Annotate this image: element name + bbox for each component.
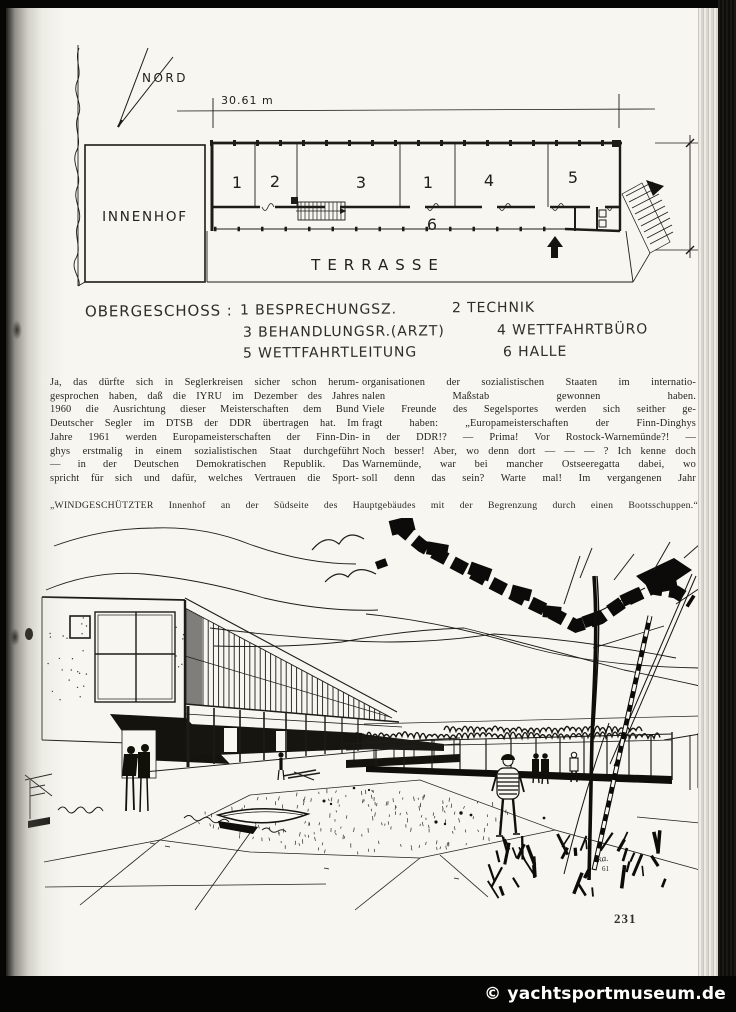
room-4: 4 [484,171,494,190]
paper-sheet: NORD 30.61 m [6,8,698,976]
wall-stipple [47,617,184,700]
image-caption: „WINDGESCHÜTZTER Innenhof an der Südseit… [50,500,698,511]
legend-title: OBERGESCHOSS : [85,301,233,320]
article-column-left: Ja, das dürfte sich in Seglerkreisen sic… [50,376,359,486]
terrasse-label: TERRASSE [310,256,445,274]
stairs [291,197,346,220]
legend-item-1: 1 BESPRECHUNGSZ. [240,301,397,318]
legend-item-5: 5 WETTFAHRTLEITUNG [243,344,417,361]
legend-item-4: 4 WETTFAHRTBÜRO [497,321,648,338]
artist-signature: ka. [597,853,609,864]
north-label: NORD [142,71,188,85]
building-plan: TERRASSE 1 2 3 1 4 5 6 [207,140,633,282]
bush-scribbles [354,726,660,739]
watermark-bar: © yachtsportmuseum.de [0,976,736,1012]
side-stair [25,774,52,828]
innenhof-label: INNENHOF [102,209,188,225]
perspective-sketch: ka. 61 [24,518,700,912]
article-column-right: organisationen der sozialistischen Staat… [362,376,696,486]
legend-item-3: 3 BEHANDLUNGSR.(ARZT) [243,323,445,340]
north-arrow: NORD [118,48,188,127]
page-number: 231 [614,911,637,927]
ramp [622,180,673,282]
room-3: 3 [356,173,366,192]
legend-item-6: 6 HALLE [503,344,567,360]
edge-mark [25,628,33,640]
entrance-arrow [547,236,563,258]
grass-edges [58,770,320,832]
birds-icon [312,535,376,582]
scanned-book-page: NORD 30.61 m [0,0,736,1012]
binding-mark-top [12,320,22,340]
room-1b: 1 [423,173,433,192]
gable-window [95,612,175,702]
artist-signature-year: 61 [602,865,610,873]
clubhouse-building [42,597,444,778]
flag-arrow [646,180,664,196]
small-window [70,616,90,638]
watermark-text: © yachtsportmuseum.de [484,984,726,1004]
width-dim-label: 30.61 m [221,94,274,107]
scan-right-border [718,0,736,1012]
pine-branch-silhouette [375,518,700,628]
dinghy-boat [218,809,308,834]
innenhof-court: INNENHOF [85,145,205,282]
striped-shirt-person [492,754,524,836]
legend-item-2: 2 TECHNIK [452,300,535,317]
room-6-hall: 6 [427,215,437,234]
room-numbers: 1 2 3 1 4 5 6 [232,168,578,234]
binding-mark-bottom [10,628,20,646]
floor-plan-drawing: NORD 30.61 m [70,30,710,298]
width-dimension: 30.61 m [177,94,655,128]
grass-tufts [488,830,666,898]
room-5: 5 [568,168,578,187]
distant-pier-line [364,716,700,724]
page-stack-edge [698,8,718,976]
room-2: 2 [270,172,280,191]
room-1a: 1 [232,173,242,192]
wc-rooms [575,207,606,231]
shore-squiggle [74,48,80,286]
mountain-lines [46,528,700,686]
